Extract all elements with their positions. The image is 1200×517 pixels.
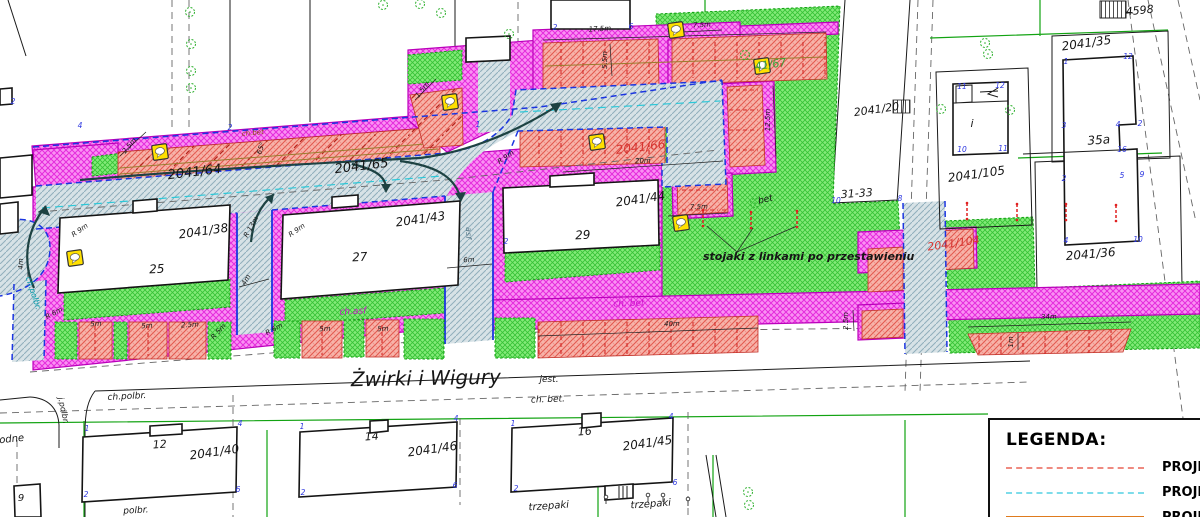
dimension-label: 2.5m: [181, 321, 200, 330]
vertex-number: 5: [1120, 171, 1125, 180]
vertex-number: 4: [454, 414, 459, 423]
sign-icon: [152, 144, 169, 161]
vertex-number: 2: [553, 23, 558, 32]
parcel-label: 2041/20: [853, 100, 900, 119]
sign-icon: [668, 22, 685, 39]
legend-entry: PROJEK: [1006, 510, 1200, 517]
legend-entry-label: PROJEK: [1162, 485, 1200, 500]
vertex-number: 16: [1117, 145, 1127, 154]
vertex-number: 10: [1133, 235, 1143, 244]
legend-entry: PROJEK: [1006, 460, 1200, 475]
dimension-label: 34m: [1041, 313, 1057, 322]
building-label: 12: [152, 438, 167, 452]
vertex-number: 2: [84, 490, 89, 499]
dimension-label: 7.5m: [693, 21, 712, 30]
tree-icon: [937, 105, 946, 114]
dimension-label: 6m: [463, 256, 475, 265]
tree-icon: [744, 488, 753, 497]
building-label: 35a: [1087, 132, 1111, 148]
building-label: 14: [364, 430, 379, 444]
post-icon: [686, 497, 690, 506]
vertex-number: 2: [514, 484, 519, 493]
vertex-number: 6: [453, 481, 458, 490]
dimension-label: 4m: [17, 258, 25, 269]
parcel-label: 2041/105: [947, 163, 1006, 185]
dimension-label: 1m: [1007, 336, 1015, 347]
vertex-number: 2: [301, 488, 306, 497]
legend-entry-label: PROJEK: [1162, 510, 1200, 517]
vertex-number: 10: [957, 145, 967, 154]
building-16: [511, 418, 673, 492]
vertex-number: 10: [831, 196, 841, 205]
tree-icon: [437, 9, 446, 18]
parcel-label: 2041/36: [1065, 245, 1116, 263]
surface-note: asf: [464, 227, 473, 240]
legend-entry: PROJEK: [1006, 485, 1200, 500]
vertex-number: 4: [1116, 120, 1121, 129]
vertex-number: 12: [995, 81, 1005, 90]
surface-note: polbr.: [122, 505, 149, 516]
building-label: 27: [352, 250, 368, 265]
dimension-label: 20m: [635, 157, 651, 166]
vertex-number: 8: [898, 194, 903, 203]
tree-icon: [745, 501, 754, 510]
dimension-label: 5.5m: [601, 51, 609, 69]
vertex-number: 9: [1140, 170, 1145, 179]
vertex-number: 4: [238, 419, 243, 428]
dimension-label: 17.5m: [588, 24, 611, 33]
vertex-number: 1: [85, 424, 90, 433]
tree-icon: [379, 1, 388, 10]
vertex-number: 2: [1062, 174, 1067, 183]
legend-title: LEGENDA:: [1006, 430, 1200, 450]
surface-note: ch.polbr.: [107, 391, 146, 403]
dimension-label: 5m: [90, 320, 102, 329]
tree-icon: [187, 84, 196, 93]
sign-icon: [589, 134, 606, 151]
vertex-number: 12: [1123, 52, 1133, 61]
tree-icon: [416, 0, 425, 9]
tree-icon: [981, 39, 990, 48]
surface-note: jest.: [537, 375, 558, 385]
surface-note: ch. bet.: [531, 394, 565, 405]
parcel-label: 4598: [1125, 3, 1154, 19]
street-name: Żwirki i Wigury: [350, 365, 503, 392]
vertex-number: 4: [78, 121, 83, 130]
dimension-label: 7.5m: [690, 203, 708, 212]
vertex-number: 6: [236, 485, 241, 494]
vertex-number: 4: [1064, 236, 1069, 245]
tree-icon: [984, 50, 993, 59]
building-label: i: [970, 117, 973, 130]
vertex-number: 6: [629, 22, 634, 31]
edge-text-fragment: odne: [0, 433, 25, 447]
dimension-label: 40m: [664, 320, 680, 329]
surface-note: ch. bet: [613, 298, 645, 309]
building-label: 29: [575, 228, 591, 243]
surface-note: trzepaki: [630, 498, 671, 512]
dimension-label: 5m: [141, 322, 153, 331]
sign-icon: [442, 94, 459, 111]
vertex-number: 2: [11, 97, 16, 106]
building-25: [58, 205, 230, 293]
legend-line-sample: [1006, 492, 1144, 494]
vertex-number: 1: [476, 120, 481, 129]
sign-icon: [673, 215, 690, 232]
dimension-label: 5m: [377, 325, 389, 334]
vertex-number: 6: [673, 478, 678, 487]
tree-icon: [187, 67, 196, 76]
vertex-number: 2: [228, 123, 233, 132]
surface-note: ch.asf: [339, 306, 368, 317]
legend-entry-label: PROJEK: [1162, 460, 1200, 475]
dimension-label: 5m: [319, 325, 331, 334]
vertex-number: 11: [998, 144, 1008, 153]
parcel-label: 31-33: [840, 186, 873, 201]
legend-line-sample: [1006, 467, 1144, 469]
building-label: 25: [149, 262, 165, 277]
legend-panel: LEGENDA: PROJEKPROJEKPROJEK: [988, 418, 1200, 517]
tree-icon: [186, 8, 195, 17]
vertex-number: 1: [511, 419, 516, 428]
vertex-number: 1: [300, 422, 305, 431]
vertex-number: 2: [1138, 119, 1143, 128]
building-label: 9: [18, 493, 24, 504]
tree-icon: [187, 40, 196, 49]
dimension-label: 2.5m: [842, 312, 850, 330]
surface-note: trzepaki: [528, 500, 569, 514]
rack-marker: [966, 202, 969, 221]
vertex-number: 11: [957, 82, 967, 91]
vertex-number: 2: [504, 237, 509, 246]
sign-icon: [67, 250, 84, 267]
vertex-number: 1: [1064, 57, 1069, 66]
vertex-number: 4: [669, 412, 674, 421]
vertex-number: 3: [1062, 121, 1067, 130]
building-label: 16: [577, 425, 592, 439]
note-stojaki: stojaki z linkami po przestawieniu: [703, 250, 915, 263]
site-plan-page: 2041/642041/652041/662041/442041/432041/…: [0, 0, 1200, 517]
dimension-label: 12.5m: [764, 109, 772, 132]
